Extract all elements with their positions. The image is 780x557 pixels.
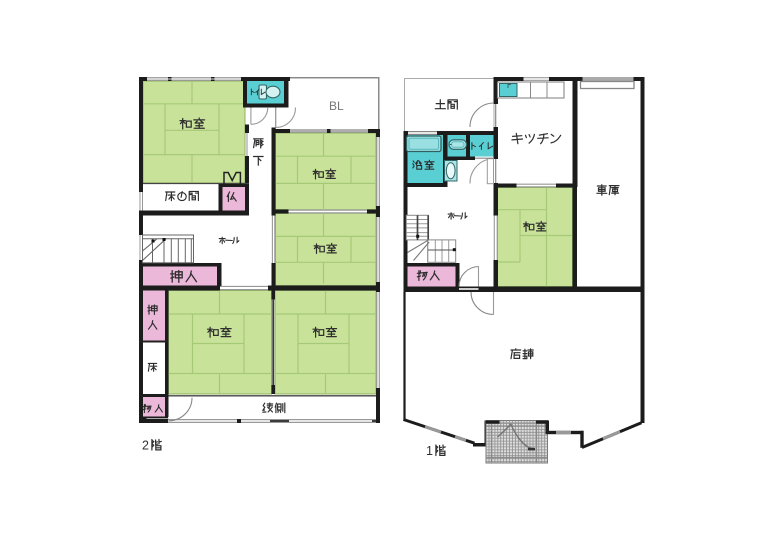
svg-text:1: 1 (426, 444, 433, 458)
svg-text:BL: BL (329, 99, 344, 113)
svg-text:2: 2 (142, 439, 149, 453)
